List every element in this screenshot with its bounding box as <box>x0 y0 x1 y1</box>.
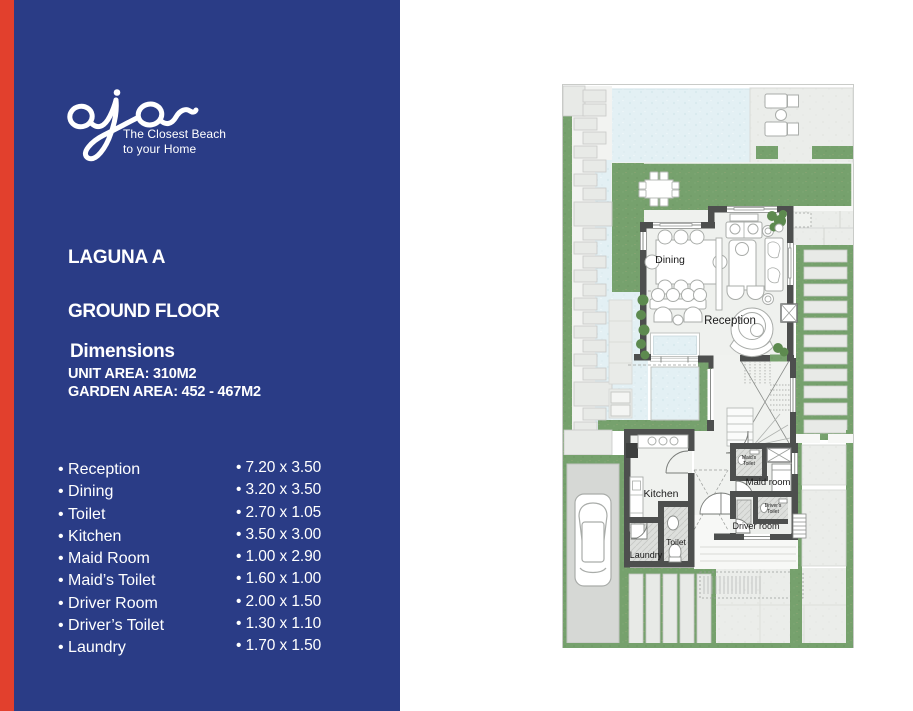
svg-text:Maid room: Maid room <box>746 477 791 488</box>
svg-text:Reception: Reception <box>704 315 756 327</box>
svg-text:Kitchen: Kitchen <box>643 488 678 500</box>
svg-text:Laundry: Laundry <box>630 550 663 560</box>
svg-text:Toilet: Toilet <box>743 461 755 467</box>
svg-text:Toilet: Toilet <box>666 537 686 547</box>
svg-text:Driver room: Driver room <box>732 521 779 531</box>
svg-text:Toilet: Toilet <box>767 509 779 515</box>
svg-text:Dining: Dining <box>655 254 685 266</box>
